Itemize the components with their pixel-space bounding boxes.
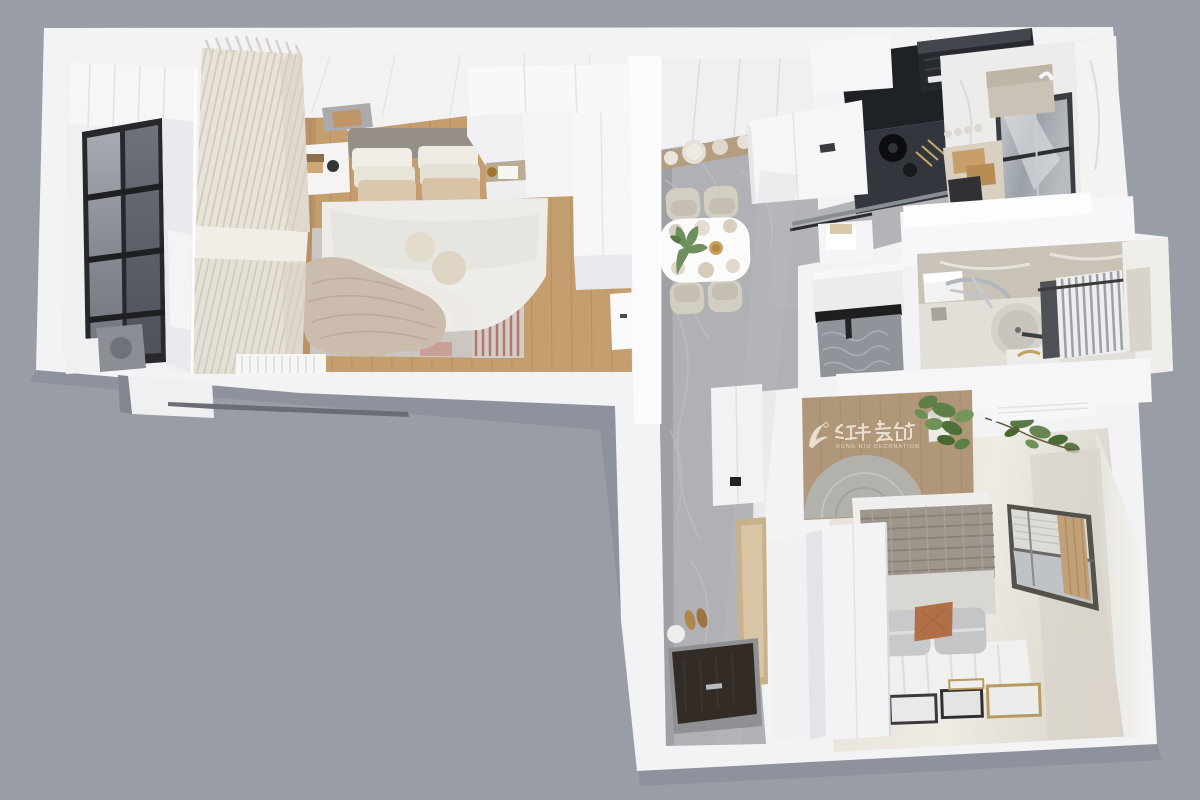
svg-text:HONG NIU DECORATION: HONG NIU DECORATION — [836, 444, 920, 450]
